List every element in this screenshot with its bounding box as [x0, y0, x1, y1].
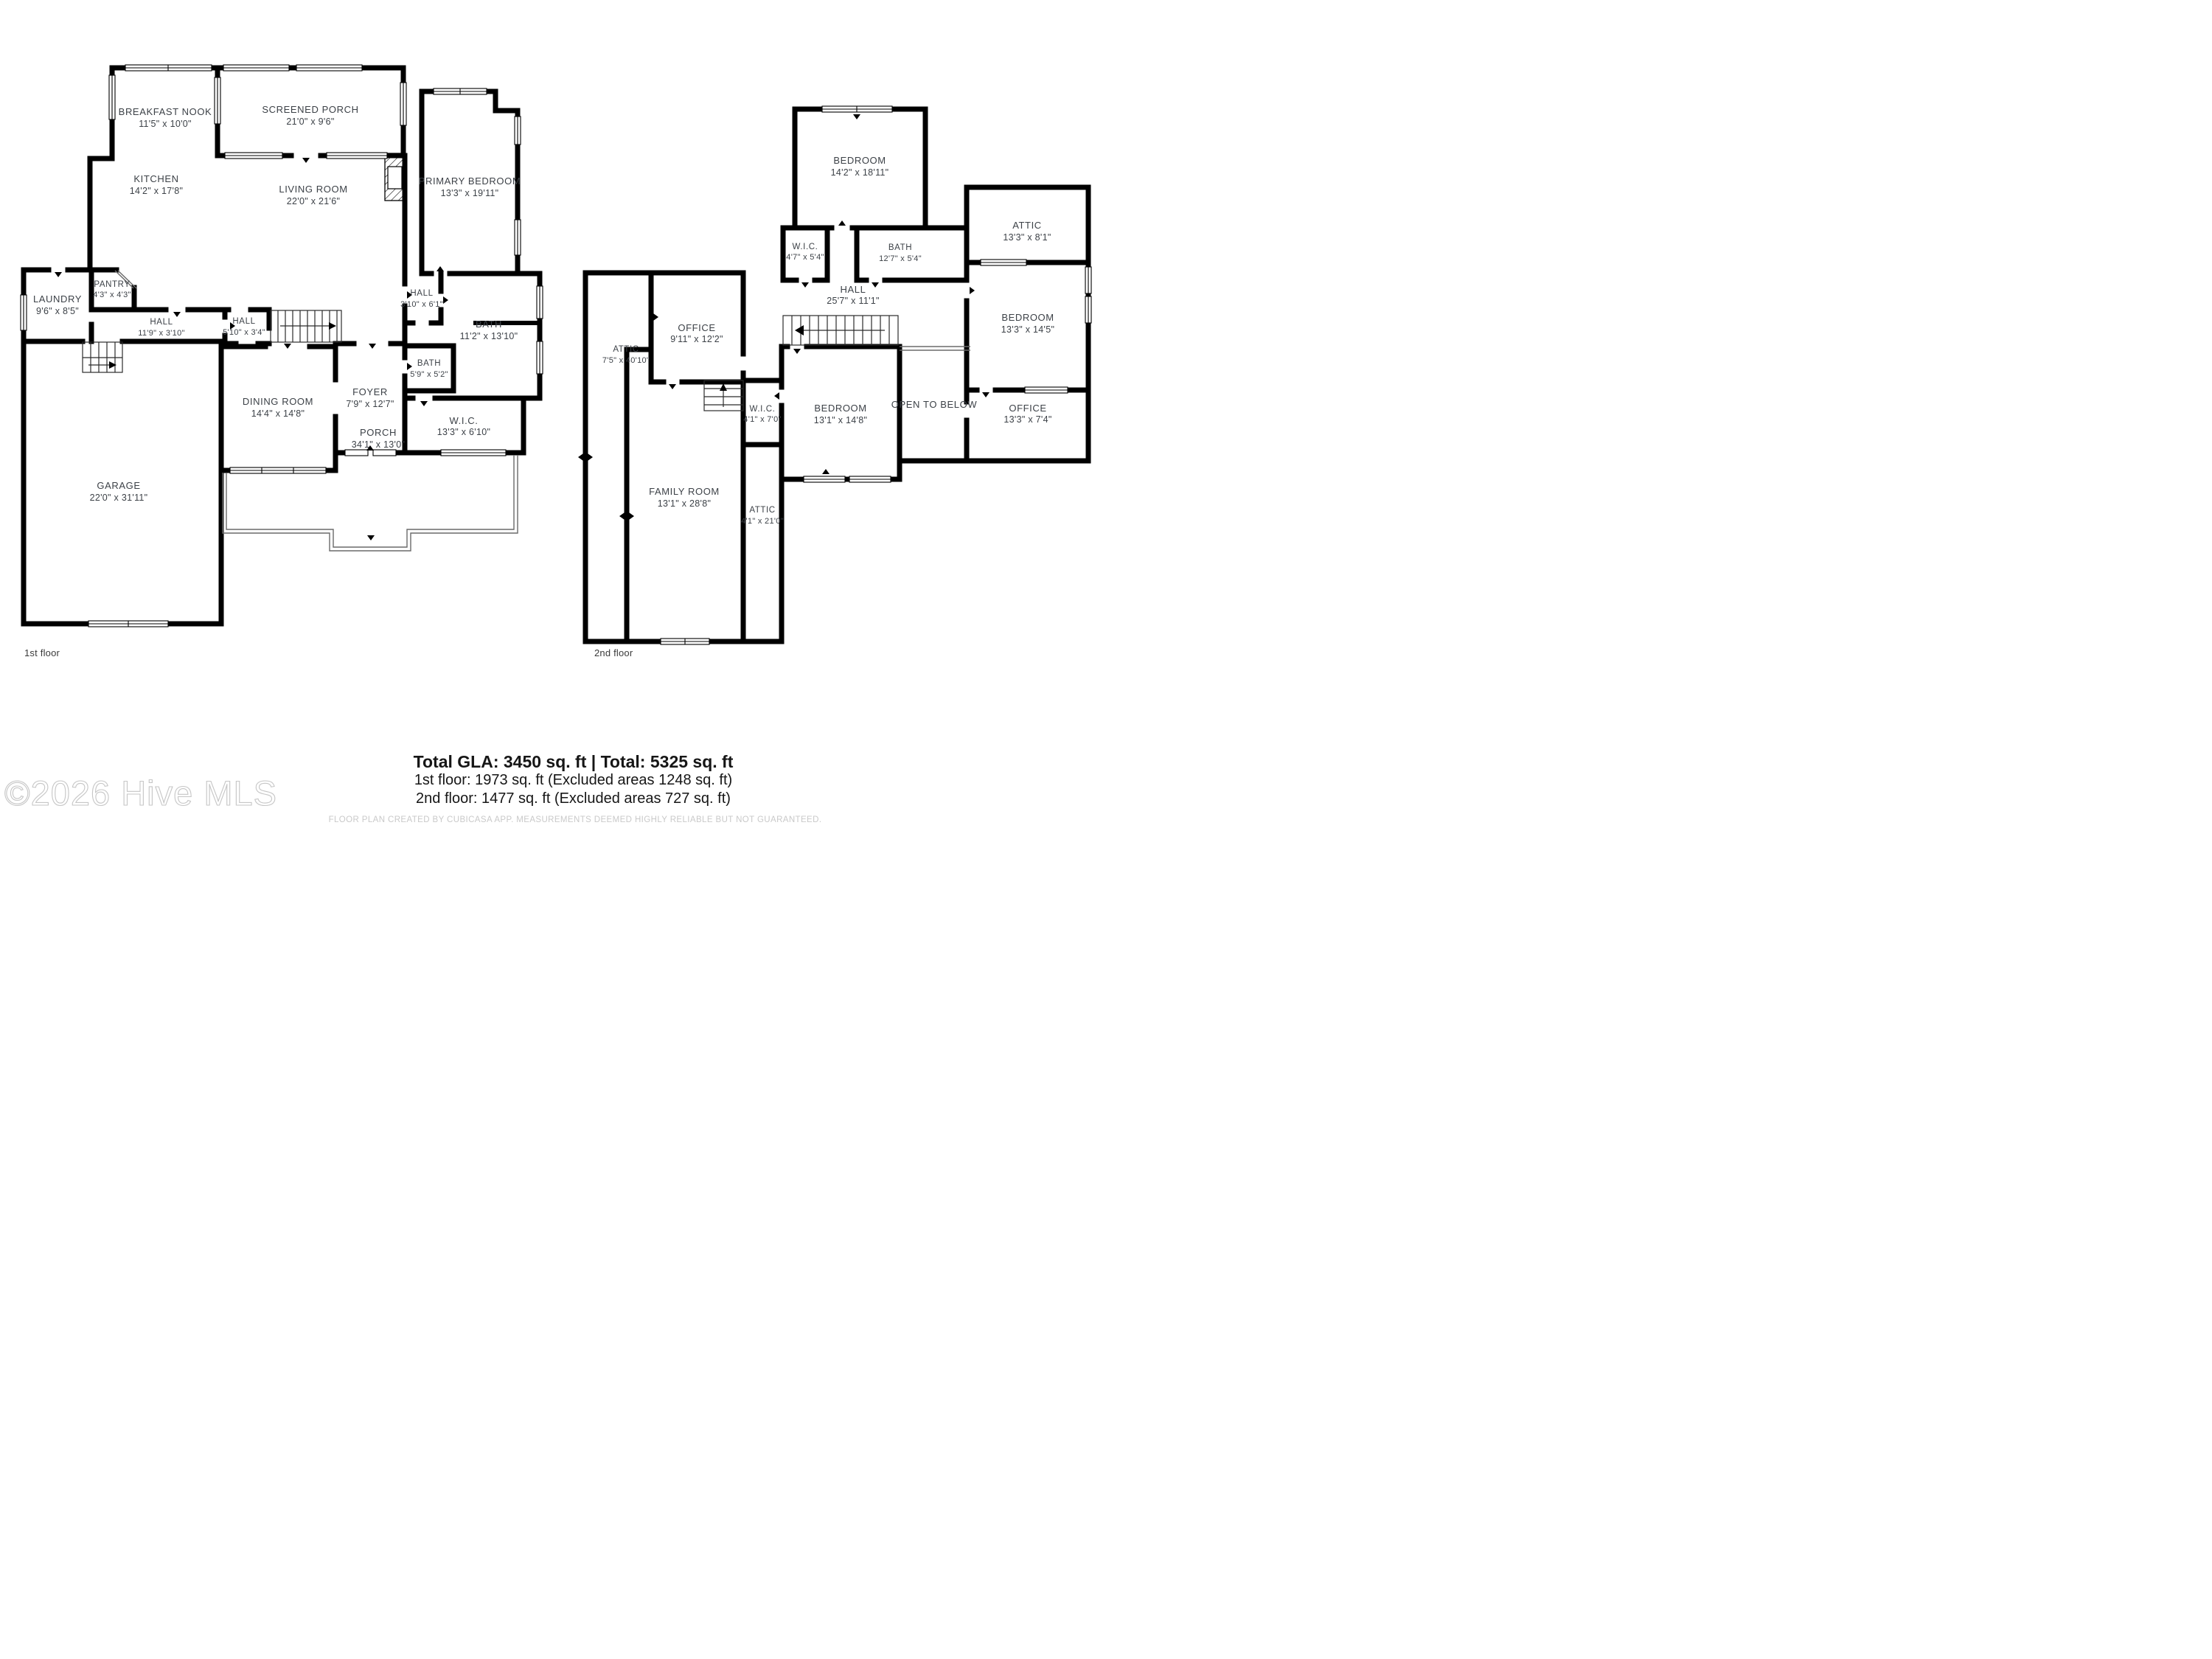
room-dims: 9'6" x 8'5"	[36, 306, 79, 316]
room-label-laundry: LAUNDRY 9'6" x 8'5"	[33, 293, 82, 316]
room-dims: 14'2" x 17'8"	[130, 186, 183, 196]
room-name: DINING ROOM	[243, 396, 313, 407]
room-dims: 13'1" x 28'8"	[658, 498, 711, 509]
room-name: SCREENED PORCH	[262, 104, 358, 115]
room-dims: 11'5" x 10'0"	[139, 119, 192, 129]
room-name: FAMILY ROOM	[649, 486, 720, 497]
room-label-breakfast-nook: BREAKFAST NOOK 11'5" x 10'0"	[119, 106, 212, 129]
room-dims: 11'9" x 3'10"	[138, 329, 184, 338]
disclaimer-text: FLOOR PLAN CREATED BY CUBICASA APP. MEAS…	[0, 815, 1106, 824]
room-name: W.I.C.	[450, 415, 479, 426]
room-dims: 13'3" x 14'5"	[1001, 324, 1054, 335]
room-dims: 14'2" x 18'11"	[831, 167, 889, 178]
room-dims: 4'1" x 21'0"	[741, 517, 784, 526]
room-dims: 4'1" x 7'0"	[743, 415, 781, 424]
room-dims: 22'0" x 21'6"	[287, 196, 340, 206]
room-label-bedroom-1: BEDROOM 14'2" x 18'11"	[831, 155, 889, 178]
room-name: BATH	[476, 319, 502, 330]
room-dims: 5'10" x 3'4"	[223, 328, 265, 337]
room-dims: 3'10" x 6'1"	[400, 300, 443, 309]
room-name: HALL	[410, 289, 433, 298]
room-name: PORCH	[360, 427, 397, 438]
room-dims: 13'3" x 19'11"	[441, 188, 499, 198]
room-label-living-room: LIVING ROOM 22'0" x 21'6"	[279, 184, 347, 206]
room-dims: 9'11" x 12'2"	[670, 334, 723, 344]
room-label-pantry: PANTRY 4'3" x 4'3"	[93, 280, 131, 299]
room-label-hall-1: HALL 11'9" x 3'10"	[138, 318, 184, 338]
room-dims: 5'9" x 5'2"	[410, 370, 448, 379]
room-name: BATH	[417, 359, 441, 368]
room-name: OFFICE	[678, 322, 715, 333]
room-dims: 14'4" x 14'8"	[251, 408, 305, 419]
room-name: BEDROOM	[814, 403, 866, 414]
room-name: PANTRY	[94, 280, 130, 289]
room-name: BEDROOM	[1001, 312, 1054, 323]
room-dims: 4'7" x 5'4"	[786, 253, 824, 262]
room-name: BREAKFAST NOOK	[119, 106, 212, 117]
room-label-kitchen: KITCHEN 14'2" x 17'8"	[130, 173, 183, 196]
room-name: BATH	[888, 243, 912, 252]
room-label-hall-3: HALL 3'10" x 6'1"	[400, 289, 443, 309]
room-label-bedroom-3: BEDROOM 13'1" x 14'8"	[814, 403, 867, 425]
second-floor-thin-lines	[900, 347, 970, 350]
second-floor-stairs	[704, 316, 898, 411]
room-label-foyer: FOYER 7'9" x 12'7"	[346, 386, 394, 409]
room-dims: 12'7" x 5'4"	[879, 254, 922, 263]
room-name: LAUNDRY	[33, 293, 82, 305]
watermark: ©2026 Hive MLS	[4, 773, 277, 813]
room-label-hall-2f: HALL 25'7" x 11'1"	[827, 284, 880, 306]
room-label-screened-porch: SCREENED PORCH 21'0" x 9'6"	[262, 104, 358, 127]
room-dims: 25'7" x 11'1"	[827, 296, 880, 306]
room-label-primary-bedroom: PRIMARY BEDROOM 13'3" x 19'11"	[419, 175, 521, 198]
room-label-hall-2: HALL 5'10" x 3'4"	[223, 317, 265, 337]
room-dims: 22'0" x 31'11"	[90, 493, 148, 503]
room-name: FOYER	[352, 386, 388, 397]
room-dims: 21'0" x 9'6"	[286, 116, 334, 127]
room-label-porch: PORCH 34'1" x 13'0"	[352, 427, 405, 450]
room-name: HALL	[841, 284, 866, 295]
room-dims: 34'1" x 13'0"	[352, 439, 405, 450]
room-label-garage: GARAGE 22'0" x 31'11"	[90, 480, 148, 503]
room-label-bath-2: BATH 5'9" x 5'2"	[410, 359, 448, 379]
room-name: W.I.C.	[793, 243, 818, 251]
floorplan-canvas: BREAKFAST NOOK 11'5" x 10'0" SCREENED PO…	[0, 0, 1106, 829]
room-name: HALL	[150, 318, 173, 327]
fireplace	[385, 153, 405, 201]
room-name: LIVING ROOM	[279, 184, 347, 195]
first-floor-labels: BREAKFAST NOOK 11'5" x 10'0" SCREENED PO…	[24, 104, 521, 658]
room-dims: 13'1" x 14'8"	[814, 415, 867, 425]
floor-label-1: 1st floor	[24, 647, 60, 658]
room-label-attic-1: ATTIC 13'3" x 8'1"	[1003, 220, 1051, 243]
room-label-wic-2f-2: W.I.C. 4'1" x 7'0"	[743, 405, 781, 424]
floor-label-2: 2nd floor	[594, 647, 633, 658]
room-name: ATTIC	[749, 506, 775, 515]
room-label-bath-2f: BATH 12'7" x 5'4"	[879, 243, 922, 263]
room-label-wic-2f-1: W.I.C. 4'7" x 5'4"	[786, 243, 824, 262]
room-label-bedroom-2: BEDROOM 13'3" x 14'5"	[1001, 312, 1054, 335]
room-name: OPEN TO BELOW	[891, 399, 978, 410]
room-dims: 7'9" x 12'7"	[346, 399, 394, 409]
room-name: ATTIC	[613, 345, 639, 354]
total-gla-line: Total GLA: 3450 sq. ft | Total: 5325 sq.…	[41, 754, 1106, 771]
second-floor-walls	[585, 109, 1088, 641]
room-label-open-to-below: OPEN TO BELOW	[891, 399, 978, 410]
room-label-dining-room: DINING ROOM 14'4" x 14'8"	[243, 396, 313, 419]
room-name: BEDROOM	[833, 155, 886, 166]
room-name: ATTIC	[1012, 220, 1042, 231]
room-label-wic-1f: W.I.C. 13'3" x 6'10"	[437, 415, 490, 437]
room-label-office-2: OFFICE 13'3" x 7'4"	[1004, 403, 1051, 425]
room-name: OFFICE	[1009, 403, 1046, 414]
room-dims: 7'5" x 40'10"	[602, 356, 650, 365]
room-dims: 13'3" x 8'1"	[1003, 232, 1051, 243]
room-name: W.I.C.	[750, 405, 776, 414]
room-label-family-room: FAMILY ROOM 13'1" x 28'8"	[649, 486, 720, 509]
room-label-office-1: OFFICE 9'11" x 12'2"	[670, 322, 723, 344]
room-dims: 13'3" x 7'4"	[1004, 414, 1051, 425]
room-label-attic-3: ATTIC 4'1" x 21'0"	[741, 506, 784, 526]
room-name: PRIMARY BEDROOM	[419, 175, 521, 187]
room-name: KITCHEN	[133, 173, 178, 184]
room-name: GARAGE	[97, 480, 140, 491]
first-floor-walls	[24, 68, 540, 624]
room-dims: 13'3" x 6'10"	[437, 427, 490, 437]
room-dims: 11'2" x 13'10"	[460, 331, 518, 341]
room-dims: 4'3" x 4'3"	[93, 291, 131, 299]
room-name: HALL	[232, 317, 255, 326]
